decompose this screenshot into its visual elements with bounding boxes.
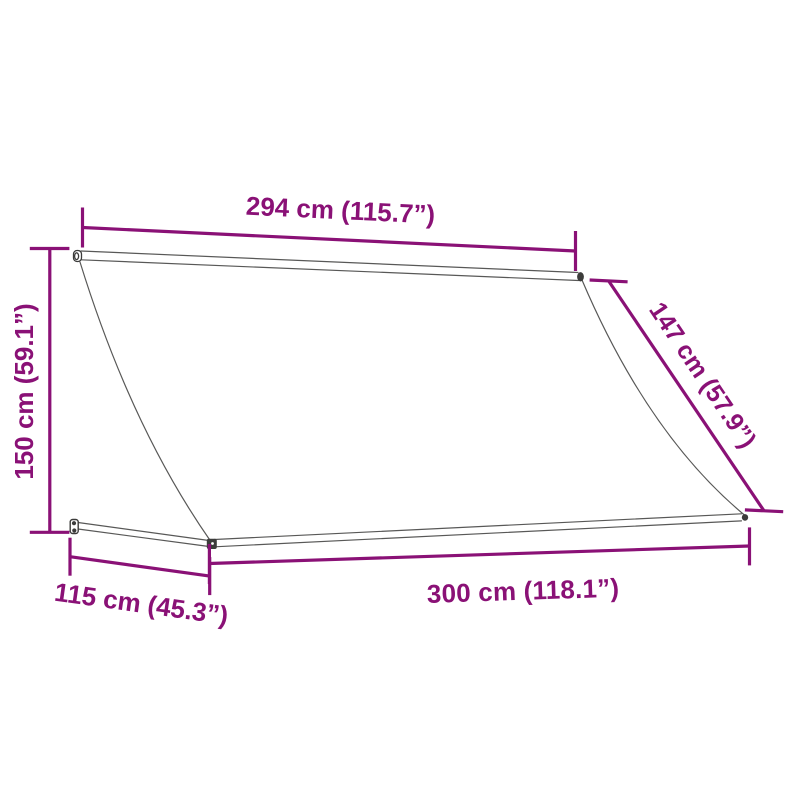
- svg-text:150 cm (59.1”): 150 cm (59.1”): [9, 303, 39, 479]
- svg-text:300 cm (118.1”): 300 cm (118.1”): [426, 573, 619, 609]
